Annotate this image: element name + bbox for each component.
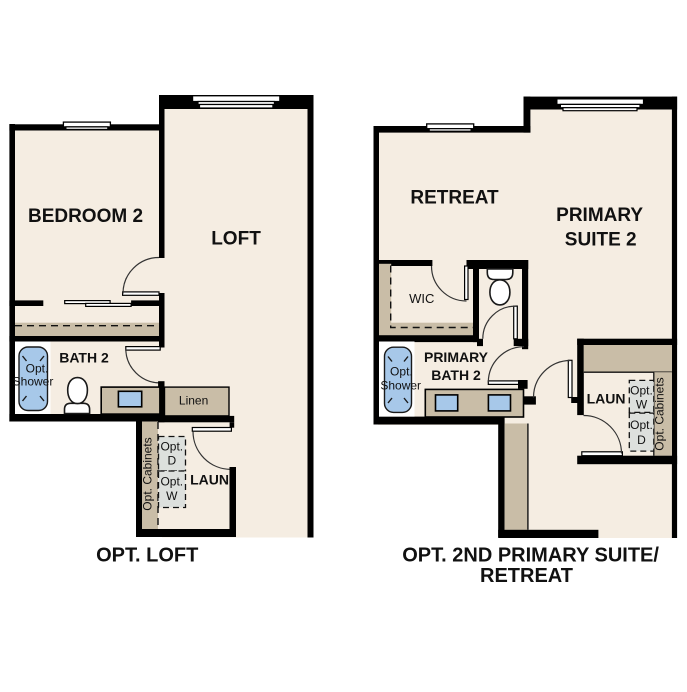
svg-text:LOFT: LOFT [211,229,261,250]
svg-text:Linen: Linen [179,394,208,408]
svg-text:RETREAT: RETREAT [410,188,499,209]
svg-text:Shower: Shower [13,374,54,388]
svg-text:D: D [167,454,176,468]
svg-text:RETREAT: RETREAT [480,565,573,587]
svg-text:BATH 2: BATH 2 [59,349,109,365]
svg-text:D: D [637,433,646,447]
svg-text:Opt.: Opt. [630,384,653,398]
svg-text:Opt.: Opt. [630,418,653,432]
svg-text:Opt.: Opt. [160,475,183,489]
svg-text:PRIMARY: PRIMARY [424,349,489,365]
svg-text:SUITE 2: SUITE 2 [565,230,637,251]
svg-text:LAUN: LAUN [587,391,626,407]
svg-text:Opt. Cabinets: Opt. Cabinets [141,437,155,510]
svg-text:PRIMARY: PRIMARY [556,205,643,226]
svg-text:W: W [166,489,178,503]
svg-text:Opt. Cabinets: Opt. Cabinets [653,377,667,450]
svg-text:Shower: Shower [380,379,421,393]
svg-text:Opt.: Opt. [390,365,413,379]
svg-text:LAUN: LAUN [190,472,229,488]
svg-text:BATH 2: BATH 2 [431,367,481,383]
svg-text:BEDROOM 2: BEDROOM 2 [28,206,143,227]
svg-text:W: W [636,398,648,412]
svg-text:Opt.: Opt. [160,440,183,454]
svg-text:WIC: WIC [409,291,434,306]
svg-text:OPT. LOFT: OPT. LOFT [96,545,198,567]
svg-text:OPT. 2ND PRIMARY SUITE/: OPT. 2ND PRIMARY SUITE/ [402,545,659,567]
